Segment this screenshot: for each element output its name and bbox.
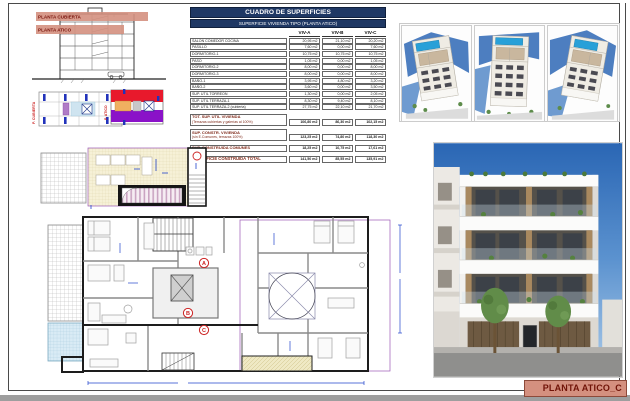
row-value: 0,00 m2: [322, 44, 353, 50]
building-section-drawing: PLANTA CUBIERTA PLANTA ATICO: [30, 6, 170, 91]
drawing-sheet: PLANTA CUBIERTA PLANTA ATICO P. CUBIERTA…: [0, 0, 630, 401]
plan-stair-core: [153, 218, 193, 251]
table-row: BAÑO-13,95 m24,80 m23,20 m2: [190, 78, 386, 84]
row-value: 3,50 m2: [355, 84, 386, 90]
keyplan-unit-purple: [111, 110, 163, 122]
row-label: BAÑO-2: [190, 84, 287, 90]
row-value: 1,30 m2: [289, 91, 320, 97]
row-value: 27,75 m2: [289, 104, 320, 110]
row-value: 3,20 m2: [355, 78, 386, 84]
roof-stair-tower: [188, 148, 206, 206]
summary-value: 74,80 m2: [322, 134, 353, 141]
row-label: DORMITORIO-1: [190, 51, 287, 57]
summary-value: 135,91 m2: [355, 156, 386, 163]
aerial-renders-strip: [399, 23, 620, 122]
row-value: 7,60 m2: [355, 44, 386, 50]
summary-label: TOT. SUP. UTIL VIVIENDA(Terrazas cubiert…: [190, 114, 287, 126]
summary-value: 85,55 m2: [322, 156, 353, 163]
row-value: 1,05 m2: [289, 58, 320, 64]
summary-value: 118,30 m2: [355, 134, 386, 141]
unit-badge-c: C: [202, 328, 206, 334]
row-label: PASILLO: [190, 44, 287, 50]
row-label: PASO: [190, 58, 287, 64]
row-value: 4,80 m2: [322, 78, 353, 84]
column-header-viv-b: VIV-B: [322, 30, 353, 37]
aerial-render-center: [474, 25, 545, 122]
summary-value: 86,30 m2: [322, 119, 353, 126]
row-label: BAÑO-1: [190, 78, 287, 84]
table-row: DORMITORIO-28,00 m20,00 m28,00 m2: [190, 64, 386, 70]
render-balcony-floors: [460, 187, 599, 318]
row-value: 0,00 m2: [322, 84, 353, 90]
summary-label: SUP. CONSTR. VIVIENDA(sin E.Comunes, ter…: [190, 129, 287, 141]
row-value: 20,20 m2: [355, 38, 386, 44]
table-row: SUP. UTIL TERRAZA-18,30 m29,40 m28,10 m2: [190, 98, 386, 104]
keyplan-cubierta-label: P. CUBIERTA: [32, 101, 36, 124]
table-row: DORMITORIO-38,00 m20,00 m28,00 m2: [190, 71, 386, 77]
table-row: SUP. UTIL TERRAZA-2 (cubierta)27,75 m222…: [190, 104, 386, 110]
row-value: 0,00 m2: [322, 91, 353, 97]
row-value: 10,75 m2: [322, 51, 353, 57]
row-value: 3,60 m2: [289, 84, 320, 90]
row-value: 0,00 m2: [322, 71, 353, 77]
row-label: SUP. UTIL TORREON: [190, 91, 287, 97]
table-title: CUADRO DE SUPERFICIES: [190, 7, 386, 18]
summary-value: 141,50 m2: [289, 156, 320, 163]
row-label: DORMITORIO-2: [190, 64, 287, 70]
render-sidewalk: [434, 347, 622, 353]
summary-subtitle: (Terrazas cubiertas y galerías al 100%): [192, 120, 285, 124]
keyplan-cubierta-stair-icon: [82, 104, 92, 114]
section-label-atico: PLANTA ATICO: [38, 28, 72, 33]
column-header-viv-c: VIV-C: [355, 30, 386, 37]
table-row: SUP. UTIL TORREON1,30 m20,00 m22,05 m2: [190, 91, 386, 97]
table-row: BAÑO-23,60 m20,00 m23,50 m2: [190, 84, 386, 90]
summary-subtitle: (sin E.Comunes, terrazas 100%): [192, 135, 285, 139]
summary-value: 17,61 m2: [355, 145, 386, 152]
table-subtitle: SUPERFICIE VIVIENDA TIPO (PLANTA ATICO): [190, 19, 386, 28]
summary-row: SUP. CONSTR. VIVIENDA(sin E.Comunes, ter…: [190, 129, 386, 141]
roof-pergola-grid: [41, 153, 86, 203]
row-value: 7,60 m2: [289, 44, 320, 50]
summary-value: 123,25 m2: [289, 134, 320, 141]
table-row: PASILLO7,60 m20,00 m27,60 m2: [190, 44, 386, 50]
render-side-wall: [602, 300, 622, 351]
row-value: 10,75 m2: [355, 51, 386, 57]
surfaces-table: CUADRO DE SUPERFICIES SUPERFICIE VIVIEND…: [190, 7, 386, 163]
plan-lower-stair: [162, 353, 194, 370]
row-label: SUP. UTIL TERRAZA-1: [190, 98, 287, 104]
keyplan-atico: P. ATICO: [103, 88, 165, 126]
row-value: 0,00 m2: [322, 64, 353, 70]
summary-value: 106,80 m2: [289, 119, 320, 126]
unit-badge-a: A: [202, 261, 206, 267]
plan-terrace-yellow: [242, 356, 312, 371]
row-value: 3,95 m2: [289, 78, 320, 84]
row-value: 20,95 m2: [289, 38, 320, 44]
row-value: 2,05 m2: [355, 91, 386, 97]
table-row: PASO1,05 m20,00 m21,05 m2: [190, 58, 386, 64]
atico-floor-plan: A B C: [28, 213, 418, 393]
keyplan-atico-stair-icon: [144, 101, 154, 111]
render-road: [434, 353, 622, 377]
row-value: 8,00 m2: [289, 71, 320, 77]
summary-value: 10,75 m2: [322, 145, 353, 152]
roof-plan: [38, 145, 253, 211]
summary-row: TOT. SUP. UTIL VIVIENDA(Terrazas cubiert…: [190, 114, 386, 126]
plan-terrace-blue: [48, 323, 83, 361]
section-label-cubierta: PLANTA CUBIERTA: [38, 15, 81, 20]
summary-value: 18,25 m2: [289, 145, 320, 152]
row-value: 8,30 m2: [289, 98, 320, 104]
aerial-render-right: [547, 25, 618, 122]
render-ground-floor: [460, 317, 599, 351]
summary-value: 102,15 m2: [355, 119, 386, 126]
title-block: PLANTA ATICO_C: [524, 380, 627, 397]
aerial-render-left: [401, 25, 472, 122]
table-column-headers: VIV-A VIV-B VIV-C: [190, 30, 386, 37]
row-value: 9,40 m2: [322, 98, 353, 104]
section-car-glyph: [108, 72, 124, 78]
row-value: 8,00 m2: [289, 64, 320, 70]
row-value: 10,75 m2: [289, 51, 320, 57]
row-value: 8,00 m2: [355, 71, 386, 77]
row-value: 8,10 m2: [355, 98, 386, 104]
keyplan-atico-label: P. ATICO: [104, 105, 108, 120]
table-row: SALON COMEDOR COCINA20,95 m221,10 m220,2…: [190, 38, 386, 44]
row-label: SUP. UTIL TERRAZA-2 (cubierta): [190, 104, 287, 110]
title-block-label: PLANTA ATICO_C: [543, 383, 622, 393]
plan-furniture: [88, 221, 364, 367]
facade-render: [433, 142, 623, 378]
roof-access-marker: [193, 152, 201, 160]
row-value: 21,10 m2: [322, 38, 353, 44]
plan-pergola-grid: [48, 225, 83, 321]
column-header-empty: [190, 30, 287, 37]
row-value: 21,70 m2: [355, 104, 386, 110]
row-value: 0,00 m2: [322, 58, 353, 64]
column-header-viv-a: VIV-A: [289, 30, 320, 37]
keyplan-unit-orange: [115, 101, 131, 111]
render-neighbor-building: [434, 167, 460, 351]
plan-lightwell: [269, 273, 315, 319]
row-value: 8,00 m2: [355, 64, 386, 70]
row-value: 1,05 m2: [355, 58, 386, 64]
row-label: SALON COMEDOR COCINA: [190, 38, 287, 44]
row-value: 22,10 m2: [322, 104, 353, 110]
unit-badge-b: B: [186, 311, 190, 317]
row-label: DORMITORIO-3: [190, 71, 287, 77]
sheet-frame-inner-line: [625, 3, 626, 392]
table-row: DORMITORIO-110,75 m210,75 m210,75 m2: [190, 51, 386, 57]
keyplan-unit-red: [111, 90, 163, 102]
plan-elevator: [171, 275, 193, 301]
